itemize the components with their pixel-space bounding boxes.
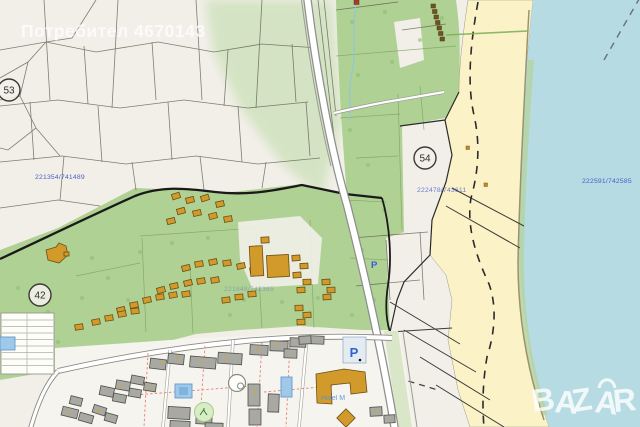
roadside-parking-icon: P — [371, 260, 378, 271]
cadastral-map: Hotel M P P 53 42 54 221354/741489 22184… — [0, 0, 640, 427]
user-watermark: Потребител 4670143 — [21, 21, 206, 41]
swimming-pool-inner — [179, 387, 188, 395]
small-pool — [281, 377, 292, 397]
zone-marker-54: 54 — [414, 147, 436, 169]
playground — [195, 403, 214, 422]
bazar-logo: B A Z A R — [529, 380, 637, 422]
parking-area: P — [343, 337, 366, 363]
coordinate-label: 222478/743611 — [417, 187, 466, 194]
beach-hut — [466, 146, 470, 150]
beach-hut — [484, 183, 488, 187]
svg-text:53: 53 — [3, 86, 15, 97]
svg-text:42: 42 — [34, 291, 46, 302]
hotel-label: Hotel M — [321, 395, 345, 402]
small-building — [354, 0, 359, 5]
map-canvas[interactable]: Hotel M P P 53 42 54 221354/741489 22184… — [0, 0, 640, 427]
coordinate-label: 221354/741489 — [35, 174, 85, 181]
fountain-circle — [229, 375, 246, 392]
coordinate-label: 222591/742585 — [582, 178, 632, 185]
zone-marker-53: 53 — [0, 79, 20, 101]
logo-letter: B — [529, 380, 556, 419]
svg-text:54: 54 — [419, 154, 431, 165]
parking-icon: P — [350, 345, 359, 360]
coordinate-label: 221848/742365 — [224, 286, 274, 293]
sea — [520, 0, 640, 427]
pond — [0, 337, 15, 350]
zone-marker-42: 42 — [29, 284, 51, 306]
